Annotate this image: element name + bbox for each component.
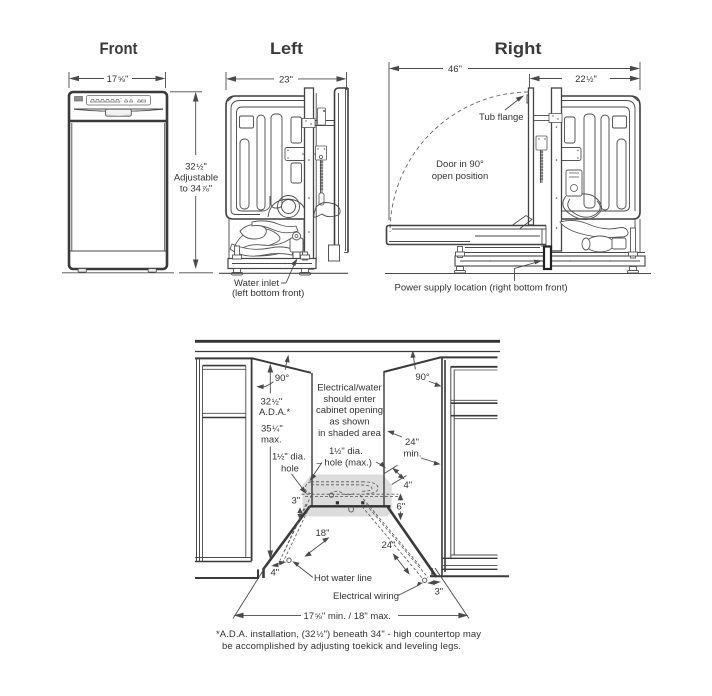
svg-text:90°: 90° [415,372,430,383]
svg-text:46": 46" [448,64,462,75]
svg-text:Power supply location (right b: Power supply location (right bottom fron… [395,283,568,294]
svg-text:17 ⅝": 17 ⅝" [107,74,129,85]
svg-text:Tub flange: Tub flange [479,112,524,123]
svg-text:min.: min. [404,449,422,460]
svg-text:cabinet opening: cabinet opening [316,405,383,416]
svg-text:Hot water line: Hot water line [314,573,372,584]
svg-text:24": 24" [405,437,419,448]
svg-text:35 ¼": 35 ¼" [261,424,283,435]
svg-text:18": 18" [316,528,330,539]
svg-text:in shaded area: in shaded area [318,428,382,439]
svg-text:open position: open position [432,171,489,182]
svg-text:max.: max. [261,435,282,446]
svg-text:should enter: should enter [323,394,375,405]
svg-text:Left: Left [270,39,303,58]
svg-text:Electrical/water: Electrical/water [317,382,381,393]
svg-text:90°: 90° [275,373,290,384]
svg-text:3": 3" [435,587,444,598]
svg-text:1½" dia.: 1½" dia. [272,452,306,463]
svg-text:to 34 ⅞": to 34 ⅞" [180,184,212,195]
svg-text:Front: Front [100,39,138,58]
svg-text:Electrical wiring: Electrical wiring [333,591,399,602]
svg-text:Adjustable: Adjustable [174,173,218,184]
svg-text:4": 4" [271,568,280,579]
svg-text:32 ½": 32 ½" [261,397,283,408]
svg-text:hole: hole [281,463,299,474]
svg-text:17 ⅝" min. / 18" max.: 17 ⅝" min. / 18" max. [304,611,391,622]
svg-text:be accomplished by adjusting t: be accomplished by adjusting toekick and… [222,641,461,652]
svg-text:3": 3" [292,496,301,507]
svg-text:– hole (max.): – hole (max.) [317,457,372,468]
svg-text:24": 24" [382,540,396,551]
svg-text:(left bottom front): (left bottom front) [232,288,304,299]
svg-text:22 ½": 22 ½" [575,74,597,85]
svg-text:23": 23" [279,74,293,85]
svg-text:4": 4" [404,480,413,491]
svg-text:Right: Right [495,39,542,58]
svg-text:*A.D.A. installation, (32 ½"): *A.D.A. installation, (32 ½") beneath 34… [216,629,481,640]
svg-text:1½" dia.: 1½" dia. [329,446,363,457]
svg-text:A.D.A.*: A.D.A.* [259,407,290,418]
svg-text:6": 6" [397,502,406,513]
svg-text:32 ½": 32 ½" [185,162,207,173]
svg-text:as shown: as shown [329,417,369,428]
svg-text:Door in 90°: Door in 90° [436,159,484,170]
